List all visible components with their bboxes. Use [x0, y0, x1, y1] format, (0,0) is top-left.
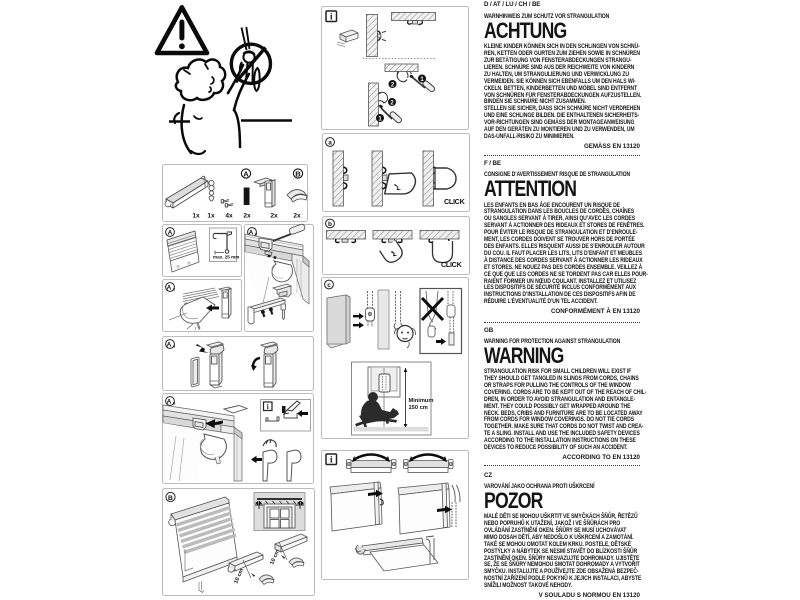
svg-text:B: B [168, 494, 173, 501]
svg-text:A: A [167, 284, 172, 291]
svg-text:i: i [329, 455, 332, 465]
svg-text:2x: 2x [270, 212, 278, 219]
svg-text:a: a [328, 140, 332, 147]
svg-text:A: A [167, 341, 172, 348]
svg-text:CLICK: CLICK [444, 197, 466, 206]
svg-text:i: i [329, 12, 332, 22]
svg-text:4x: 4x [225, 212, 233, 219]
svg-text:2: 2 [173, 286, 176, 291]
svg-text:2x: 2x [243, 212, 251, 219]
svg-text:Minimum: Minimum [408, 398, 433, 404]
svg-text:150 cm: 150 cm [408, 405, 427, 411]
svg-text:max. 25 mm: max. 25 mm [213, 255, 239, 260]
svg-text:1x: 1x [207, 212, 215, 219]
svg-text:10 cm: 10 cm [269, 548, 281, 565]
svg-text:i: i [267, 403, 269, 411]
svg-text:b: b [328, 221, 332, 228]
svg-text:A: A [243, 169, 249, 178]
svg-text:2x: 2x [293, 212, 301, 219]
svg-text:A: A [168, 230, 173, 237]
svg-text:B: B [295, 169, 301, 178]
svg-text:c: c [327, 282, 331, 289]
svg-text:1x: 1x [192, 212, 200, 219]
svg-text:CLICK: CLICK [441, 260, 463, 269]
svg-text:4: 4 [173, 343, 176, 348]
svg-text:A: A [167, 399, 172, 406]
svg-text:5: 5 [173, 401, 176, 406]
